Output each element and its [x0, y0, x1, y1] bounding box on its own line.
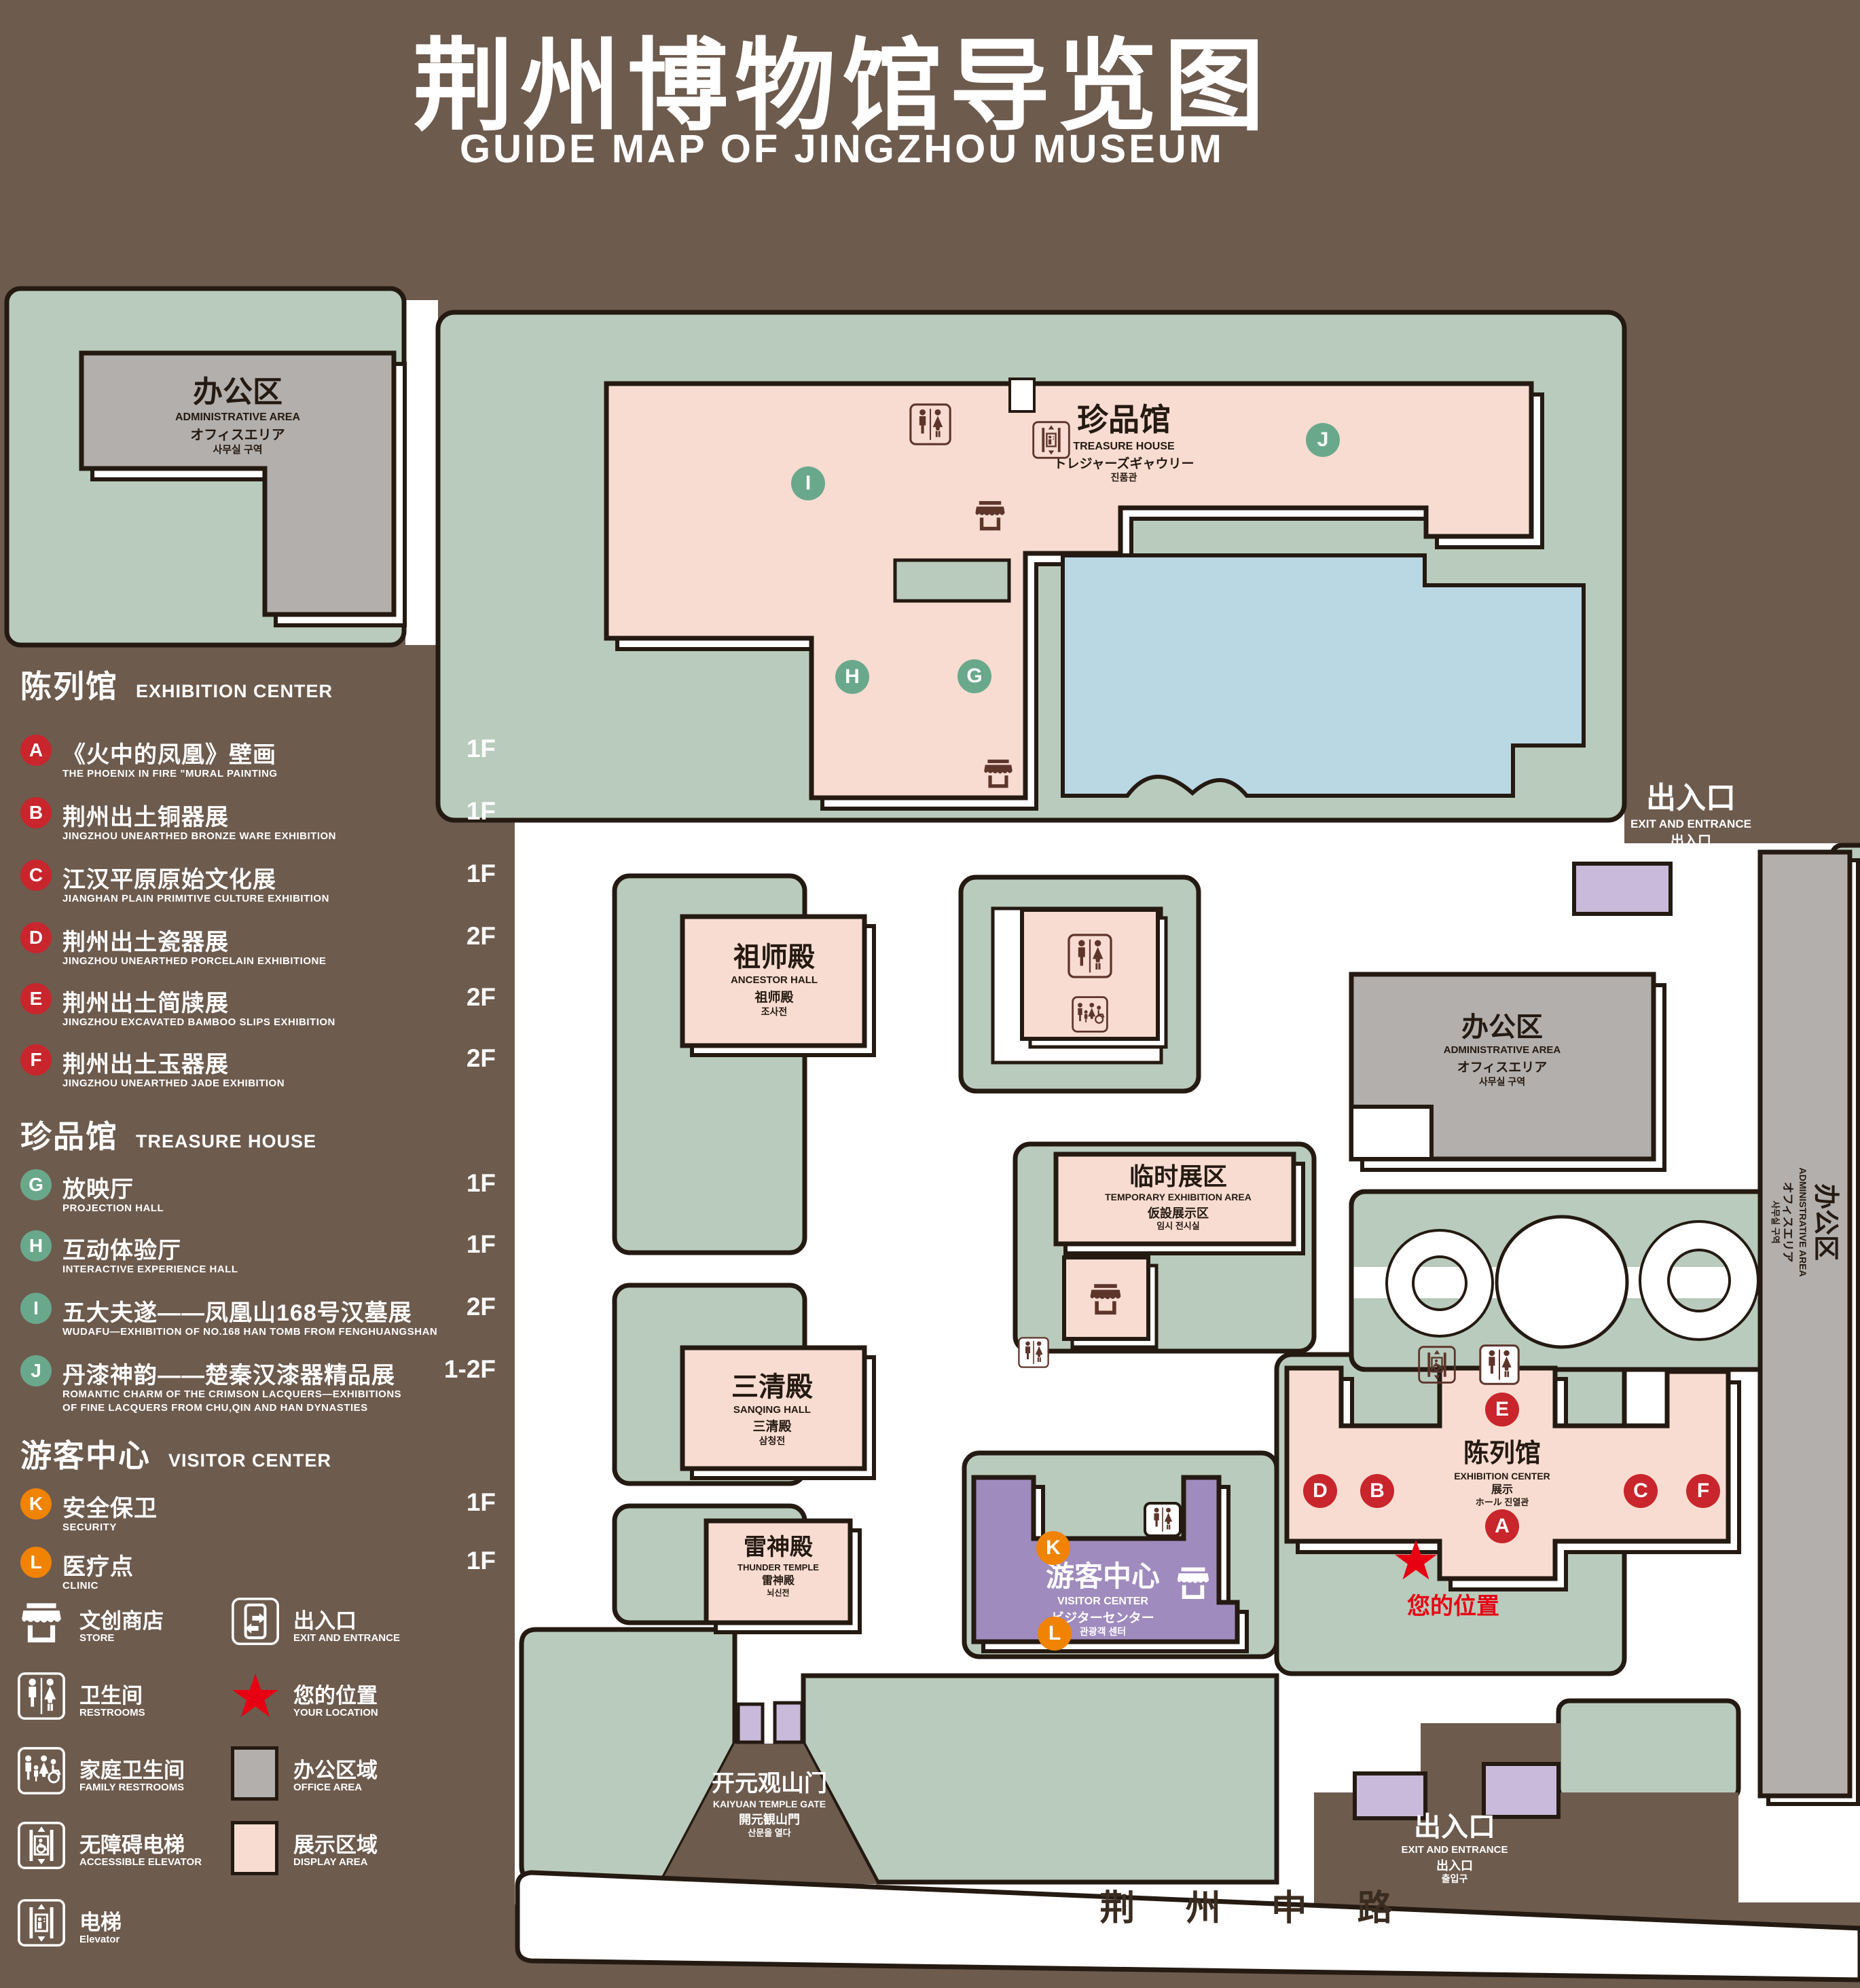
map-marker-j: J: [1306, 423, 1340, 457]
legend-item-a: A 《火中的凤凰》壁画 1F THE PHOENIX IN FIRE "MURA…: [20, 735, 489, 792]
map-marker-d: D: [1303, 1474, 1337, 1508]
restrooms-icon: [1068, 934, 1112, 978]
label-road: 荆 州 中 路: [1099, 1879, 1412, 1930]
map-marker-e: E: [1485, 1393, 1519, 1426]
label-exit-south: 出入口 EXIT AND ENTRANCE 出入口 출입구: [1402, 1810, 1508, 1885]
building-admin-east: [1760, 852, 1858, 1804]
accessible-elevator-icon: [1418, 1346, 1456, 1384]
store-icon: [1173, 1562, 1213, 1602]
label-temporary-exhibition: 临时展区 TEMPORARY EXHIBITION AREA 仮設展示区 임시 …: [1105, 1161, 1252, 1232]
map-marker-l: L: [1038, 1617, 1072, 1651]
label-admin-middle: 办公区 ADMINISTRATIVE AREA オフィスエリア 사무실 구역: [1444, 1010, 1561, 1088]
badge-j: J: [20, 1355, 52, 1386]
badge-d: D: [20, 922, 52, 953]
legend-item-b: B 荆州出土铜器展 1F JINGZHOU UNEARTHED BRONZE W…: [20, 797, 489, 854]
family-restroom-icon: [17, 1746, 66, 1795]
legend-item-g: G 放映厅 1F PROJECTION HALL: [20, 1169, 489, 1226]
elevator-icon: [1032, 421, 1070, 459]
store-icon: [981, 755, 1016, 790]
legend-section-treasure-house: 珍品馆TREASURE HOUSE: [20, 1112, 316, 1157]
legend-item-d: D 荆州出土瓷器展 2F JINGZHOU UNEARTHED PORCELAI…: [20, 922, 489, 979]
museum-guide-map-poster: 荆州博物馆导览图 GUIDE MAP OF JINGZHOU MUSEUM 办公…: [0, 0, 1860, 1988]
label-ancestor-hall: 祖师殿 ANCESTOR HALL 祖师殿 조사전: [731, 940, 818, 1018]
badge-l: L: [20, 1547, 52, 1578]
legend-item-f: F 荆州出土玉器展 2F JINGZHOU UNEARTHED JADE EXH…: [20, 1044, 489, 1101]
map-marker-f: F: [1686, 1474, 1720, 1508]
store-icon: [972, 496, 1008, 533]
label-exit-east: 出入口 EXIT AND ENTRANCE 出入口 출입구: [1630, 779, 1751, 863]
badge-e: E: [20, 983, 52, 1014]
map-marker-i: I: [791, 466, 825, 500]
accessible-elevator-icon: [17, 1821, 66, 1870]
badge-k: K: [20, 1488, 52, 1520]
page-subtitle: GUIDE MAP OF JINGZHOU MUSEUM: [460, 126, 1224, 172]
badge-f: F: [20, 1044, 52, 1075]
office-area-swatch: [231, 1746, 278, 1801]
map-marker-h: H: [835, 660, 869, 694]
legend-section-exhibition-center: 陈列馆EXHIBITION CENTER: [20, 662, 333, 707]
label-thunder-temple: 雷神殿 THUNDER TEMPLE 雷神殿 뇌신전: [737, 1533, 819, 1598]
restrooms-icon: [17, 1672, 66, 1720]
label-admin-top-left: 办公区 ADMINISTRATIVE AREA オフィスエリア 사무실 구역: [175, 373, 300, 457]
label-kaiyuan-gate: 开元观山门 KAIYUAN TEMPLE GATE 開元観山門 산문을 열다: [712, 1769, 827, 1839]
pond: [1063, 555, 1584, 796]
badge-h: H: [20, 1230, 52, 1262]
display-area-swatch: [231, 1821, 278, 1875]
map-marker-k: K: [1036, 1531, 1070, 1565]
green-gate-right: [803, 1676, 1277, 1882]
badge-b: B: [20, 797, 52, 828]
elevator-icon: [17, 1898, 66, 1947]
your-location-star-icon: [1393, 1538, 1438, 1583]
badge-c: C: [20, 860, 52, 891]
legend-section-visitor-center: 游客中心VISITOR CENTER: [20, 1431, 331, 1476]
courtyard-southeast: [1558, 1701, 1738, 1799]
legend-item-c: C 江汉平原原始文化展 1F JIANGHAN PLAIN PRIMITIVE …: [20, 860, 489, 917]
label-admin-east: 办公区 ADMINISTRATIVE AREA オフィスエリア 사무실 구역: [1769, 1168, 1841, 1277]
label-exhibition-center: 陈列馆 EXHIBITION CENTER 展示 ホール 진열관: [1454, 1438, 1550, 1508]
store-icon: [1087, 1279, 1125, 1317]
store-icon: [17, 1597, 66, 1646]
label-your-location: 您的位置: [1407, 1587, 1499, 1621]
restrooms-icon: [909, 403, 951, 445]
label-treasure-house: 珍品馆 TREASURE HOUSE トレジャーズギャウリー 진품관: [1053, 401, 1194, 484]
path-channel: [405, 300, 438, 645]
map-marker-a: A: [1485, 1509, 1519, 1543]
legend-item-i: I 五大夫遂——凤凰山168号汉墓展 2F WUDAFU—EXHIBITION …: [20, 1293, 489, 1350]
legend-item-h: H 互动体验厅 1F INTERACTIVE EXPERIENCE HALL: [20, 1230, 489, 1287]
exit-entrance-icon: [231, 1597, 280, 1646]
map-marker-c: C: [1624, 1474, 1658, 1508]
badge-g: G: [20, 1169, 52, 1200]
garden: [1348, 1192, 1796, 1369]
legend-item-k: K 安全保卫 1F SECURITY: [20, 1488, 489, 1545]
restrooms-icon: [1018, 1337, 1049, 1368]
map-marker-g: G: [958, 659, 991, 693]
legend-item-l: L 医疗点 1F CLINIC: [20, 1547, 489, 1604]
exit-entrance-icon: [1581, 821, 1620, 860]
legend-item-e: E 荆州出土简牍展 2F JINGZHOU EXCAVATED BAMBOO S…: [20, 983, 489, 1040]
green-island: [895, 560, 1009, 601]
badge-a: A: [20, 735, 52, 766]
label-sanqing-hall: 三清殿 SANQING HALL 三清殿 삼청전: [731, 1370, 813, 1447]
restrooms-icon: [1479, 1344, 1520, 1385]
legend-item-j: J 丹漆神韵——楚秦汉漆器精品展 1-2F ROMANTIC CHARM OF …: [20, 1355, 489, 1412]
map-marker-b: B: [1360, 1474, 1394, 1508]
family-restroom-icon: [1072, 996, 1108, 1033]
your-location-star-icon: [231, 1672, 280, 1720]
restrooms-icon: [1147, 1504, 1178, 1535]
badge-i: I: [20, 1293, 52, 1324]
